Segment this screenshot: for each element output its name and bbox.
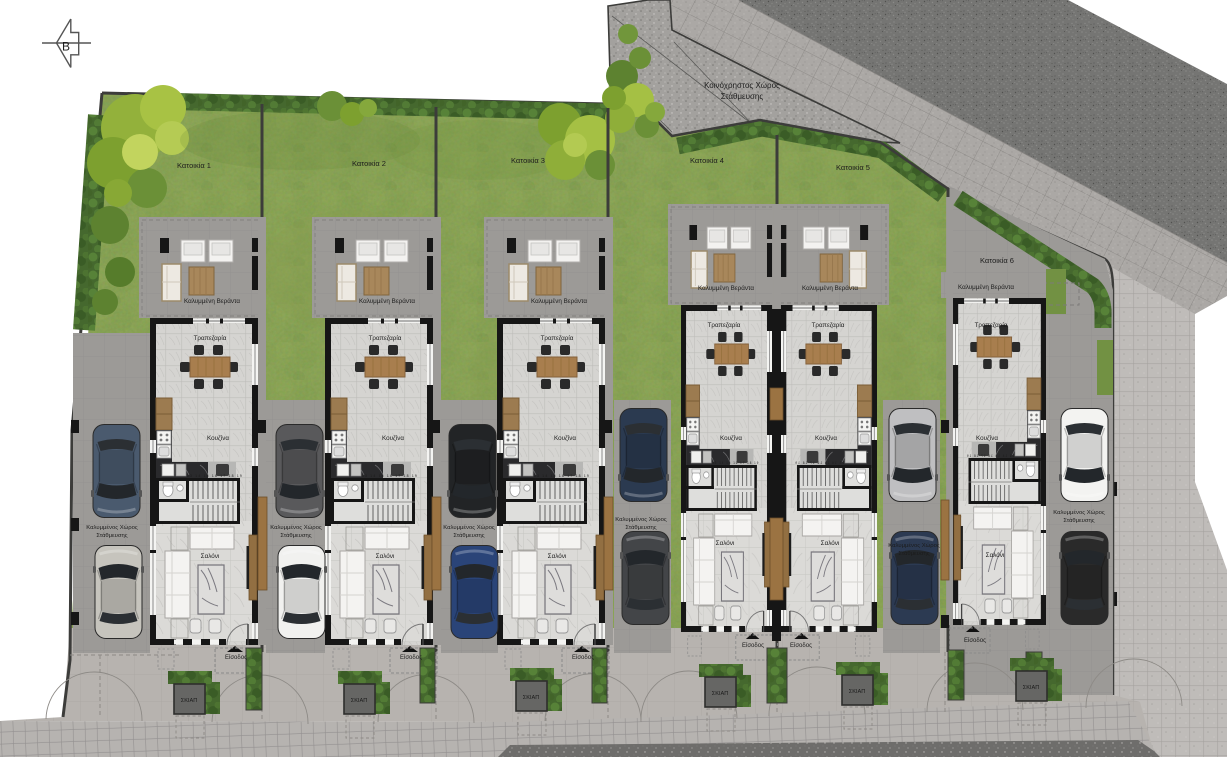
- svg-text:Κουζίνα: Κουζίνα: [554, 434, 576, 442]
- svg-text:Κατοικία 4: Κατοικία 4: [690, 156, 724, 165]
- svg-text:ΣΚΙΑΠ: ΣΚΙΑΠ: [712, 691, 729, 697]
- svg-text:ΣΚΙΑΠ: ΣΚΙΑΠ: [523, 695, 540, 701]
- svg-text:Στάθμευσης: Στάθμευσης: [898, 550, 929, 557]
- svg-text:Είσοδος: Είσοδος: [225, 655, 247, 661]
- svg-text:ΣΚΙΑΠ: ΣΚΙΑΠ: [1023, 685, 1040, 691]
- svg-text:Κατοικία 3: Κατοικία 3: [511, 156, 545, 165]
- svg-text:Τραπεζαρία: Τραπεζαρία: [708, 321, 741, 329]
- svg-text:Στάθμευσης: Στάθμευσης: [625, 524, 656, 531]
- svg-text:Κουζίνα: Κουζίνα: [976, 434, 998, 442]
- svg-text:Στάθμευσης: Στάθμευσης: [280, 532, 311, 539]
- svg-text:Κατοικία 2: Κατοικία 2: [352, 159, 386, 168]
- svg-text:Κουζίνα: Κουζίνα: [207, 434, 229, 442]
- svg-text:Είσοδος: Είσοδος: [964, 638, 986, 644]
- svg-text:Στάθμευσης: Στάθμευσης: [96, 532, 127, 539]
- svg-text:Κουζίνα: Κουζίνα: [720, 434, 742, 442]
- svg-text:Β: Β: [62, 40, 70, 54]
- svg-text:Κατοικία 5: Κατοικία 5: [836, 163, 870, 172]
- svg-text:Κοινόχρηστος Χώρος: Κοινόχρηστος Χώρος: [704, 81, 780, 90]
- svg-text:Κουζίνα: Κουζίνα: [815, 434, 837, 442]
- svg-text:Είσοδος: Είσοδος: [742, 643, 764, 649]
- svg-text:Τραπεζαρία: Τραπεζαρία: [812, 321, 845, 329]
- svg-text:Τραπεζαρία: Τραπεζαρία: [541, 334, 574, 342]
- svg-text:Καλυμμένη Βεράντα: Καλυμμένη Βεράντα: [531, 297, 587, 305]
- svg-text:Κουζίνα: Κουζίνα: [382, 434, 404, 442]
- svg-text:Καλυμμένος Χώρος: Καλυμμένος Χώρος: [270, 524, 322, 531]
- svg-text:ΣΚΙΑΠ: ΣΚΙΑΠ: [181, 698, 198, 704]
- svg-text:Καλυμμένη Βεράντα: Καλυμμένη Βεράντα: [184, 297, 240, 305]
- svg-text:Καλυμμένος Χώρος: Καλυμμένος Χώρος: [443, 524, 495, 531]
- svg-text:Σαλόνι: Σαλόνι: [821, 539, 840, 547]
- svg-text:Σαλόνι: Σαλόνι: [986, 551, 1005, 559]
- svg-text:Καλυμμένος Χώρος: Καλυμμένος Χώρος: [888, 542, 940, 549]
- svg-text:Καλυμμένος Χώρος: Καλυμμένος Χώρος: [86, 524, 138, 531]
- svg-text:Είσοδος: Είσοδος: [572, 655, 594, 661]
- svg-text:Στάθμευσης: Στάθμευσης: [453, 532, 484, 539]
- svg-text:ΣΚΙΑΠ: ΣΚΙΑΠ: [351, 698, 368, 704]
- svg-text:Σαλόνι: Σαλόνι: [201, 552, 220, 560]
- svg-text:Καλυμμένος Χώρος: Καλυμμένος Χώρος: [1053, 509, 1105, 516]
- svg-text:Στάθμευσης: Στάθμευσης: [1063, 517, 1094, 524]
- svg-text:Τραπεζαρία: Τραπεζαρία: [369, 334, 402, 342]
- svg-text:Σαλόνι: Σαλόνι: [548, 552, 567, 560]
- svg-text:Κατοικία 1: Κατοικία 1: [177, 161, 211, 170]
- svg-text:Είσοδος: Είσοδος: [790, 643, 812, 649]
- svg-text:Κατοικία 6: Κατοικία 6: [980, 256, 1014, 265]
- svg-text:Καλυμμένος Χώρος: Καλυμμένος Χώρος: [615, 516, 667, 523]
- svg-text:Καλυμμένη Βεράντα: Καλυμμένη Βεράντα: [958, 283, 1014, 291]
- svg-text:Σαλόνι: Σαλόνι: [716, 539, 735, 547]
- svg-text:Τραπεζαρία: Τραπεζαρία: [975, 321, 1008, 329]
- svg-text:Είσοδος: Είσοδος: [400, 655, 422, 661]
- svg-text:Στάθμευσης: Στάθμευσης: [721, 92, 764, 101]
- svg-text:Καλυμμένη Βεράντα: Καλυμμένη Βεράντα: [698, 284, 754, 292]
- svg-text:Τραπεζαρία: Τραπεζαρία: [194, 334, 227, 342]
- svg-text:Σαλόνι: Σαλόνι: [376, 552, 395, 560]
- svg-text:Καλυμμένη Βεράντα: Καλυμμένη Βεράντα: [359, 297, 415, 305]
- svg-text:ΣΚΙΑΠ: ΣΚΙΑΠ: [849, 689, 866, 695]
- svg-text:Καλυμμένη Βεράντα: Καλυμμένη Βεράντα: [802, 284, 858, 292]
